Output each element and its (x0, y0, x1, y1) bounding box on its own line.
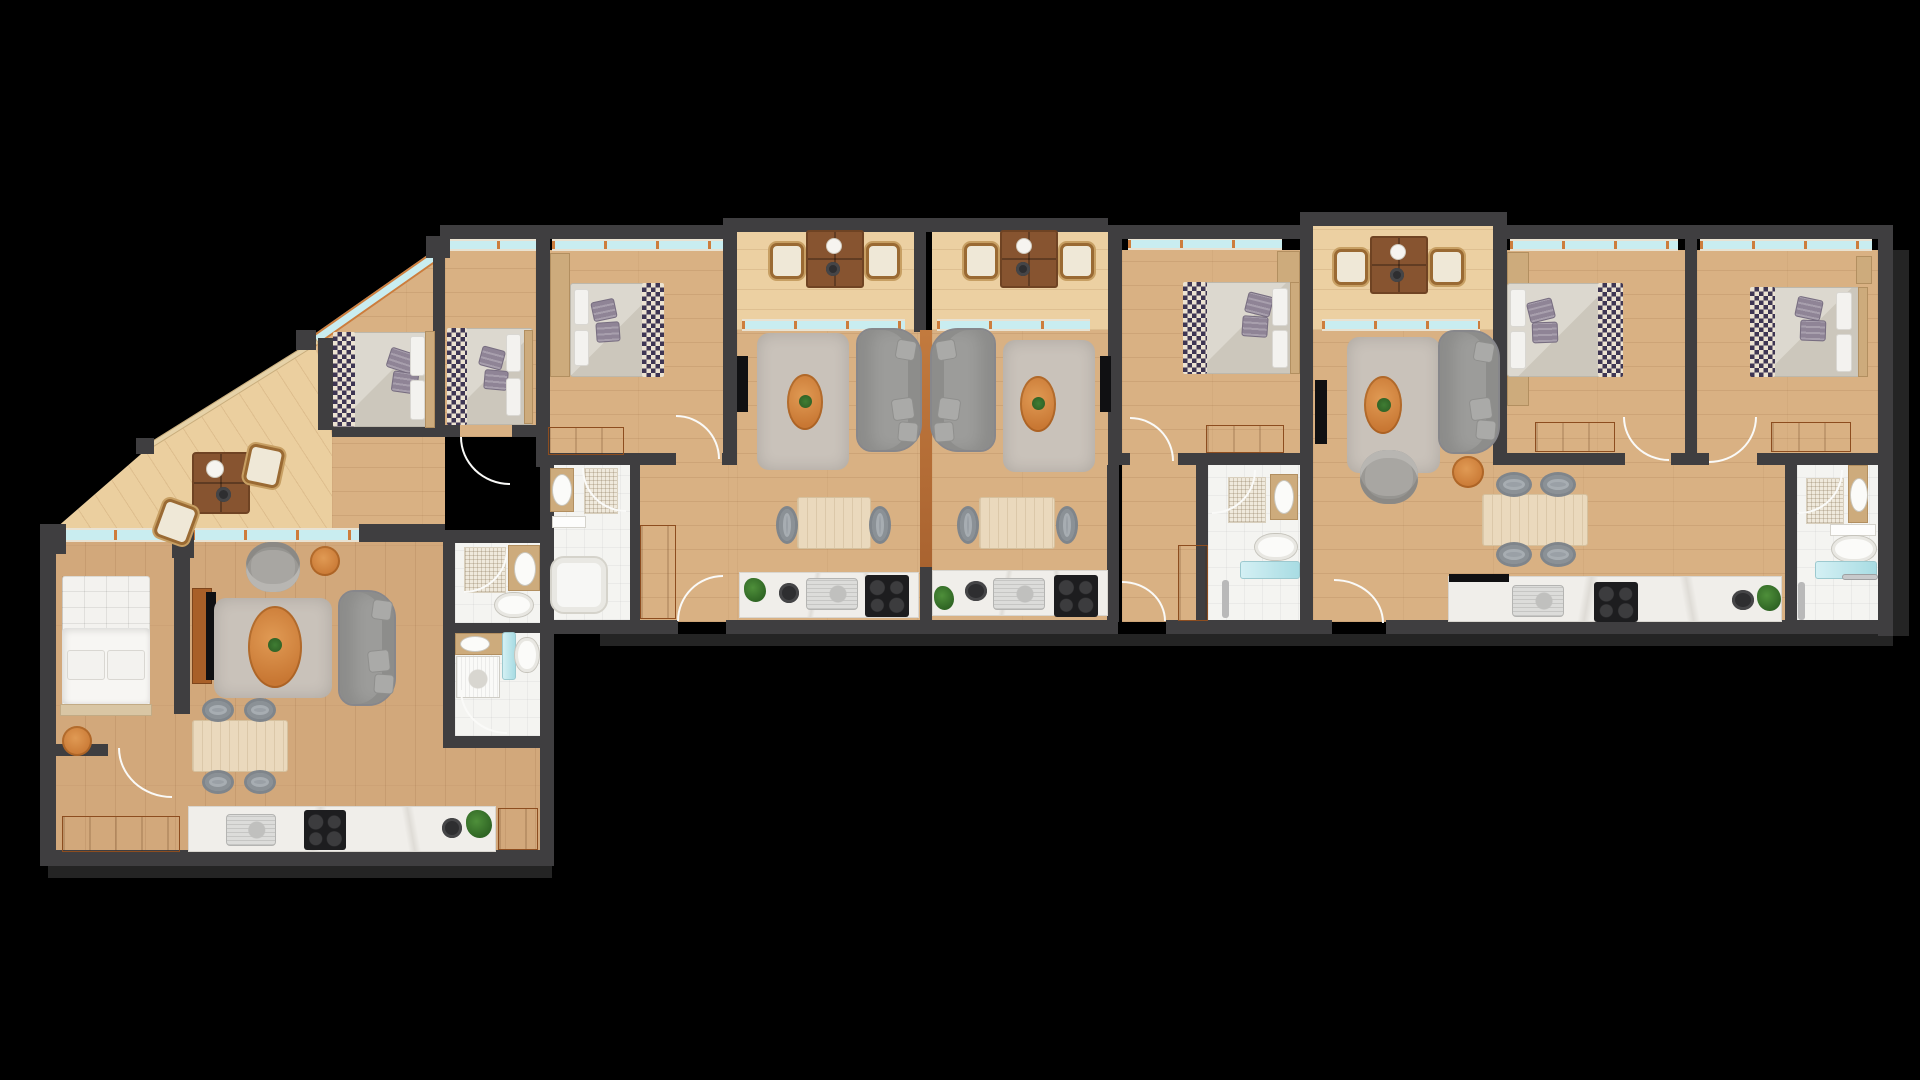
kitchen-e-plant (1757, 585, 1781, 611)
wall-bath-h-left (1785, 465, 1797, 622)
living-e-side-stool (1452, 456, 1484, 488)
living-e-sofa-pillow-3 (1475, 419, 1497, 441)
bed-1-pillow-white-1 (410, 336, 425, 376)
living-left-sofa-pillow-2 (367, 649, 391, 673)
balcony-e-kettle (1390, 244, 1406, 260)
bed-left-platform (60, 704, 152, 716)
living-c-sofa-pillow-3 (933, 421, 955, 443)
bed-f-pillow-white-1 (1510, 289, 1526, 327)
balcony-b-chair-right (866, 243, 900, 279)
wall-top-bed-f (1507, 225, 1687, 239)
bedroom-d-wardrobe (1277, 251, 1300, 285)
shadow-right (1893, 250, 1909, 636)
living-e-sofa-pillow-2 (1469, 397, 1494, 422)
kitchen-c-sink (993, 578, 1045, 610)
terrace-kettle (206, 460, 224, 478)
wall-balcony-e-top (1302, 212, 1507, 226)
bath-left-1-toilet (494, 592, 534, 618)
wall-bathleft-top (443, 530, 542, 543)
bath-left-2-sink (460, 636, 490, 652)
bath-a-tub (550, 556, 608, 614)
living-left-sofa-pillow-3 (373, 673, 394, 694)
balcony-b-bowl (826, 262, 840, 276)
wall-bottom-seg-3 (1166, 620, 1332, 634)
bed-3-pillow-white-2 (574, 330, 589, 366)
living-e-sofa-pillow-1 (1472, 340, 1495, 363)
wall-top-bed-d (1115, 225, 1305, 239)
bath-a-shelf (552, 516, 586, 528)
corridor-b-tall-cabinet (640, 525, 676, 619)
bed-d-headboard (1290, 282, 1300, 374)
bedroom-g-cabinet (1771, 422, 1851, 452)
dining-b-chair-left (776, 506, 798, 544)
living-b-plant (799, 395, 812, 408)
kitchen-b-bowl (779, 583, 799, 603)
living-e-tv (1315, 380, 1327, 444)
shadow-bottom-right (600, 634, 1893, 646)
bath-h-toilet (1831, 535, 1877, 563)
kitchen-c-cooktop (1054, 575, 1098, 617)
bedroom-f-cabinet (1535, 422, 1615, 452)
living-left-armchair (246, 542, 300, 592)
wall-d-bottom-a (1108, 453, 1130, 465)
window-bedroom-g (1700, 239, 1872, 251)
wall-bottom-left (40, 850, 552, 866)
kitchen-b-plant (744, 578, 766, 602)
bed-left-pillow-1 (67, 650, 105, 680)
balcony-c-bowl (1016, 262, 1030, 276)
wall-bedroom1-west (318, 338, 334, 430)
window-bedroom-3 (552, 239, 724, 251)
bed-2-pillow-white-1 (506, 334, 521, 372)
wall-de-low (1300, 465, 1313, 622)
balcony-e-chair-right (1430, 249, 1464, 285)
dining-e-chair-2 (1540, 472, 1576, 497)
bed-f-pillow-white-2 (1510, 331, 1526, 369)
living-e-armchair (1360, 450, 1418, 504)
wall-top-bed2 (440, 225, 540, 239)
bath-h-towel-rail (1798, 582, 1805, 620)
bedroom-3-cabinet (548, 427, 624, 455)
dining-b-table (797, 497, 871, 549)
floor-plan (0, 0, 1920, 1080)
bath-left-2-toilet (514, 637, 540, 673)
wall-d-bottom-b (1178, 453, 1300, 465)
wall-bottom-seg-1 (548, 620, 678, 634)
bath-h-grab-bar (1842, 574, 1878, 580)
terrace-bowl (216, 487, 231, 502)
bed-1-throw (333, 332, 355, 427)
bed-g-throw (1750, 287, 1775, 377)
bath-h-sink (1850, 478, 1868, 512)
wall-diag-mid (296, 330, 316, 350)
kitchen-left-cabinet-east (498, 808, 538, 850)
balcony-c-chair-left (964, 243, 998, 279)
wall-corridor-b (723, 220, 737, 465)
bath-left-1-sink (514, 552, 536, 586)
wall-bathleft-divider (455, 623, 540, 633)
dining-e-chair-4 (1540, 542, 1576, 567)
wall-bathblock-left (443, 540, 455, 748)
living-b-tv (737, 356, 748, 412)
bedroom-d-cabinet (1206, 425, 1284, 453)
wall-top-bed3 (536, 225, 726, 239)
wall-cd (1108, 225, 1122, 465)
kitchen-left-plant (466, 810, 492, 838)
bed-3-pillow-white-1 (574, 289, 589, 325)
living-left-stool (310, 546, 340, 576)
living-b-sofa-pillow-3 (897, 421, 919, 443)
bed-2-pillow-gray-2 (483, 369, 509, 391)
kitchen-e-hood-strip (1449, 574, 1509, 582)
bed-d-pillow-gray-2 (1241, 315, 1268, 338)
dining-e-chair-1 (1496, 472, 1532, 497)
bed-3-pillow-gray-2 (595, 321, 620, 343)
living-left-sofa-pillow-1 (371, 599, 394, 622)
kitchen-left-cabinet-west (62, 816, 180, 852)
kitchen-c-bowl (965, 581, 987, 601)
living-c-sofa-pillow-2 (937, 397, 962, 422)
dining-left-chair-4 (244, 770, 276, 794)
wall-f-bottom (1507, 453, 1625, 465)
wall-bottom-seg-2 (726, 620, 1118, 634)
wall-top-bed-g (1685, 225, 1893, 239)
wall-left-top-corner (40, 524, 66, 554)
dining-c-chair-right (1056, 506, 1078, 544)
bath-d-towel-rail (1222, 580, 1229, 618)
bed-d-pillow-white-1 (1272, 288, 1288, 326)
dining-e-table (1482, 494, 1588, 546)
bed-f-pillow-gray-2 (1532, 322, 1559, 344)
dining-c-chair-left (957, 506, 979, 544)
bed-g-pillow-gray-2 (1800, 320, 1827, 342)
bed-2-throw (447, 328, 467, 425)
living-c-sofa-pillow-1 (934, 338, 957, 361)
living-c-plant (1032, 397, 1045, 410)
bed-d-throw (1183, 282, 1207, 374)
bath-d-toilet (1254, 533, 1298, 561)
living-e-plant (1377, 398, 1391, 412)
bed-2-pillow-white-2 (506, 378, 521, 416)
dining-left-chair-2 (244, 698, 276, 722)
bath-d-sink (1274, 480, 1294, 514)
kitchen-e-cooktop (1594, 582, 1638, 622)
window-bedroom-2 (445, 239, 538, 251)
balcony-e-chair-left (1334, 249, 1368, 285)
wall-g-bottom (1757, 453, 1893, 465)
kitchen-b-cooktop (865, 575, 909, 617)
bed-3-throw (642, 283, 664, 377)
wall-de (1300, 212, 1313, 465)
wall-bottom-seg-4 (1386, 620, 1893, 634)
door-arc-bedroom-2 (460, 437, 510, 485)
bed-g-pillow-white-1 (1836, 292, 1852, 330)
living-left-plant (268, 638, 282, 652)
bed-g-pillow-white-2 (1836, 334, 1852, 372)
shadow-bottom-left (48, 866, 552, 878)
dining-left-table (192, 720, 288, 772)
bed-1-headboard (425, 331, 435, 428)
bed-g-headboard (1858, 287, 1868, 377)
bed-2-headboard (524, 330, 533, 424)
wall-terrace-end (359, 524, 445, 542)
window-bedroom-d (1128, 238, 1282, 250)
balcony-c-chair-right (1060, 243, 1094, 279)
wall-right-outer (1878, 237, 1893, 636)
wall-left-outer (40, 524, 56, 866)
balcony-e-bowl (1390, 268, 1404, 282)
dining-left-chair-1 (202, 698, 234, 722)
bedroom-g-nightstand (1856, 256, 1872, 284)
bath-d-tub (1240, 561, 1300, 579)
kitchen-left-cooktop (304, 810, 346, 850)
bed-1-pillow-white-2 (410, 380, 425, 420)
wall-fg-divider (1685, 237, 1697, 453)
bed-left-pillow-2 (107, 650, 145, 680)
living-b-sofa-pillow-2 (891, 397, 916, 422)
kitchen-e-sink (1512, 585, 1564, 617)
balcony-b-kettle (826, 238, 842, 254)
wall-bc-party-top (914, 232, 926, 332)
kitchen-left-sink (226, 814, 276, 846)
window-bedroom-f (1510, 239, 1678, 251)
wall-cd-low (1107, 465, 1119, 622)
window-terrace-b (192, 528, 359, 542)
bedroom-left-stool (62, 726, 92, 756)
dining-left-chair-3 (202, 770, 234, 794)
bedroom-3-wardrobe (550, 253, 570, 377)
balcony-c-kettle (1016, 238, 1032, 254)
dining-b-chair-right (869, 506, 891, 544)
bath-a-sink (552, 474, 572, 506)
living-b-sofa-pillow-1 (894, 338, 917, 361)
living-c-tv (1100, 356, 1111, 412)
floor-corridor-topleft (332, 425, 445, 540)
wall-bc-party-low (920, 567, 932, 622)
wall-bedroomleft-divider (174, 540, 190, 714)
balcony-c-desk (1000, 230, 1058, 288)
bed-f-throw (1598, 283, 1623, 377)
kitchen-e-bowl (1732, 590, 1754, 610)
dining-e-chair-3 (1496, 542, 1532, 567)
kitchen-b-sink (806, 578, 858, 610)
wall-diag-low-end (136, 438, 154, 454)
bed-d-pillow-white-2 (1272, 330, 1288, 368)
kitchen-left-bowl (442, 818, 462, 838)
wall-fg-bottom (1671, 453, 1709, 465)
dining-c-table (979, 497, 1055, 549)
corridor-d-cabinet (1178, 545, 1208, 621)
wall-bath-a-right (630, 465, 640, 622)
wall-bathblock-bottom (443, 736, 552, 748)
kitchen-c-plant (934, 586, 954, 610)
balcony-b-chair-left (770, 243, 804, 279)
